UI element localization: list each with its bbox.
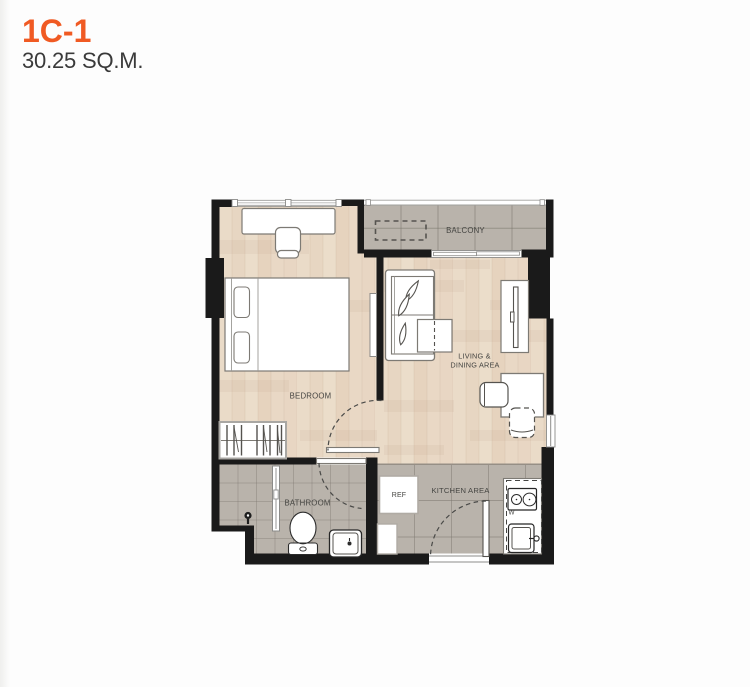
svg-text:BALCONY: BALCONY <box>446 226 485 235</box>
svg-text:DINING AREA: DINING AREA <box>450 361 499 370</box>
svg-text:BATHROOM: BATHROOM <box>284 499 330 508</box>
svg-text:REF: REF <box>392 492 407 499</box>
svg-text:LIVING &: LIVING & <box>458 352 490 361</box>
svg-text:KITCHEN AREA: KITCHEN AREA <box>431 486 490 495</box>
svg-text:W: W <box>508 510 515 517</box>
svg-text:BEDROOM: BEDROOM <box>290 392 332 401</box>
